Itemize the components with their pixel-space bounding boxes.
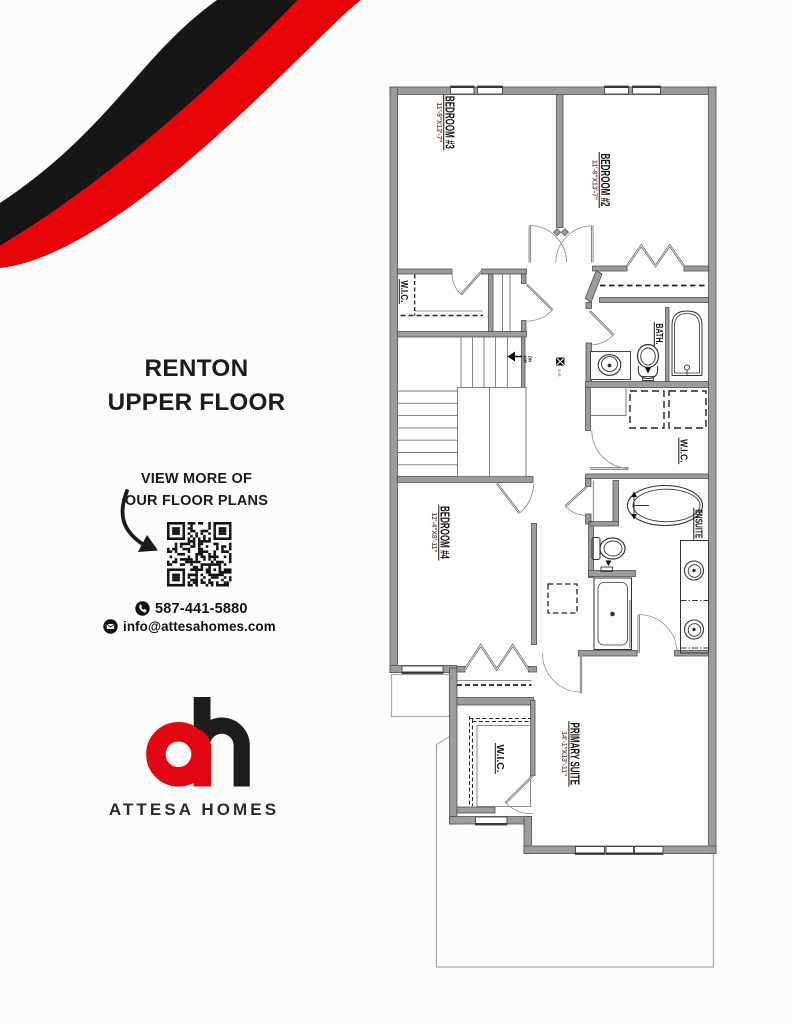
svg-text:BEDROOM #4: BEDROOM #4 (437, 506, 452, 559)
svg-text:11'-9"X13'-7": 11'-9"X13'-7" (591, 160, 598, 200)
svg-text:BEDROOM #2: BEDROOM #2 (598, 154, 613, 207)
svg-text:11'-9"X13'-7": 11'-9"X13'-7" (435, 102, 442, 142)
svg-text:BEDROOM #3: BEDROOM #3 (442, 96, 457, 149)
svg-text:14'-1"X13'-11": 14'-1"X13'-11" (560, 731, 567, 776)
svg-text:12'-4"X8'-11": 12'-4"X8'-11" (430, 513, 437, 553)
svg-text:16R: 16R (523, 355, 528, 364)
svg-text:S-/S: S-/S (557, 369, 561, 377)
svg-text:PRIMARY SUITE: PRIMARY SUITE (568, 723, 582, 786)
